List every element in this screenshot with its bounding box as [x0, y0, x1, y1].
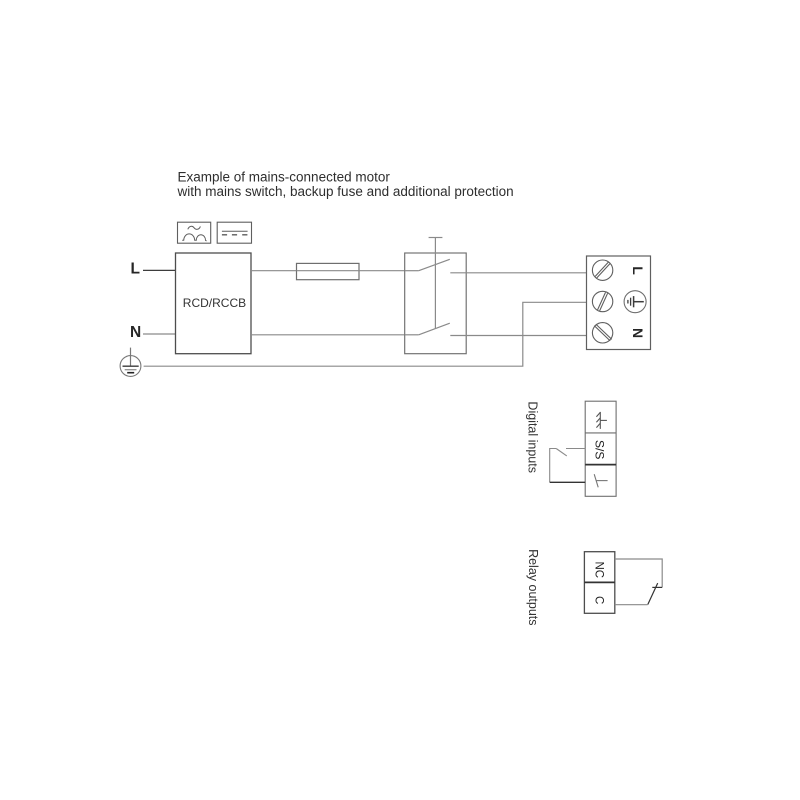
svg-text:N: N — [630, 328, 646, 338]
svg-text:NC: NC — [592, 561, 604, 578]
svg-text:Relay outputs: Relay outputs — [526, 549, 540, 625]
svg-text:RCD/RCCB: RCD/RCCB — [183, 296, 246, 310]
svg-text:C: C — [592, 596, 604, 604]
svg-text:L: L — [131, 261, 140, 278]
svg-text:Digital inputs: Digital inputs — [525, 401, 539, 473]
svg-text:with mains switch, backup fuse: with mains switch, backup fuse and addit… — [177, 184, 514, 199]
svg-text:Example of mains-connected mot: Example of mains-connected motor — [178, 170, 391, 185]
svg-text:S/S: S/S — [593, 440, 607, 459]
svg-text:L: L — [630, 266, 646, 275]
svg-text:N: N — [130, 324, 141, 341]
